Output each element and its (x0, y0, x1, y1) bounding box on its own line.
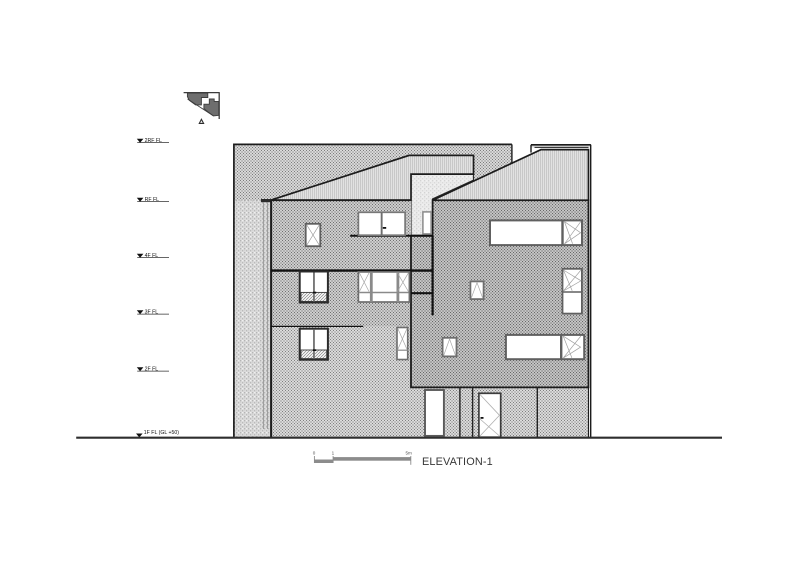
svg-text:1: 1 (332, 451, 335, 456)
svg-text:0: 0 (313, 451, 316, 456)
svg-text:5m: 5m (406, 451, 413, 456)
svg-text:ELEVATION-1: ELEVATION-1 (422, 456, 493, 468)
svg-text:1F FL (GL +50): 1F FL (GL +50) (144, 430, 179, 436)
